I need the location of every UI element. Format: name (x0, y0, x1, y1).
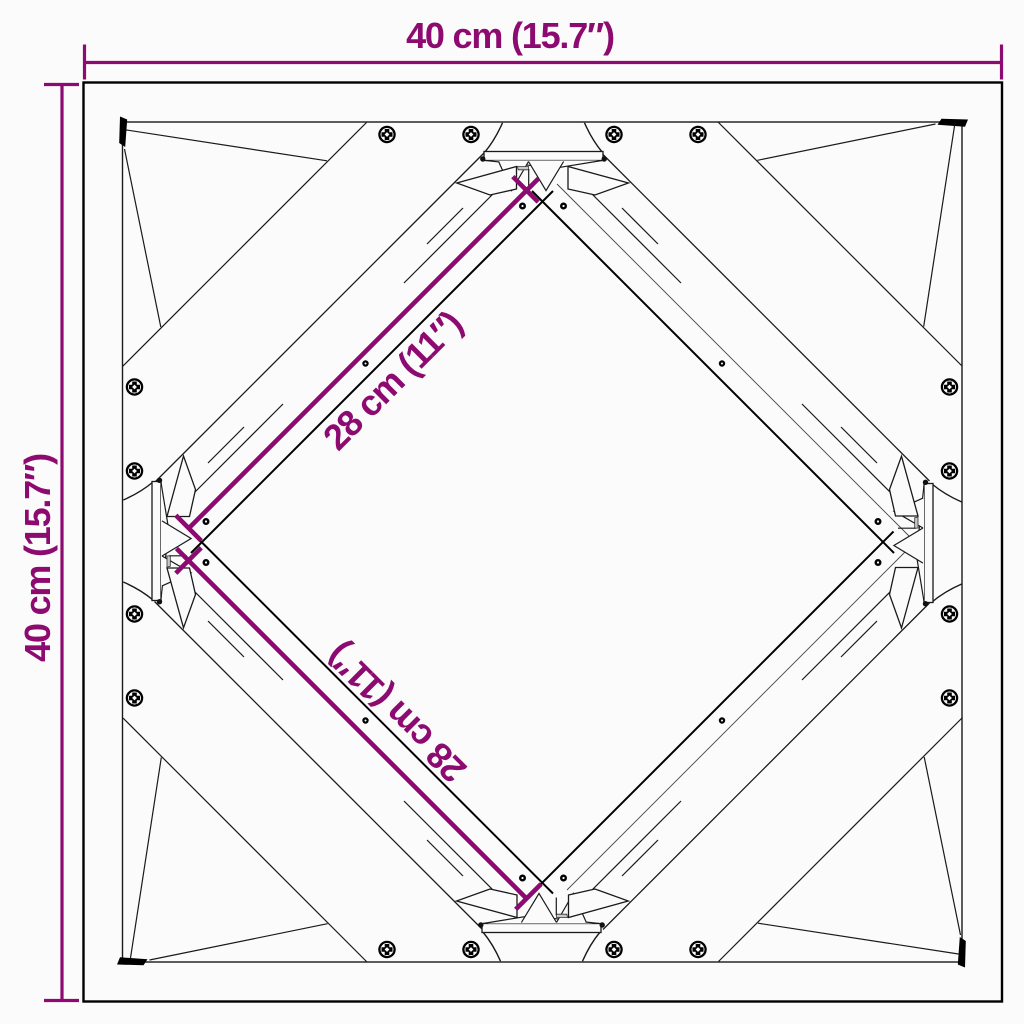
svg-text:40 cm (15.7″): 40 cm (15.7″) (17, 454, 58, 662)
svg-text:40 cm (15.7″): 40 cm (15.7″) (406, 15, 614, 56)
